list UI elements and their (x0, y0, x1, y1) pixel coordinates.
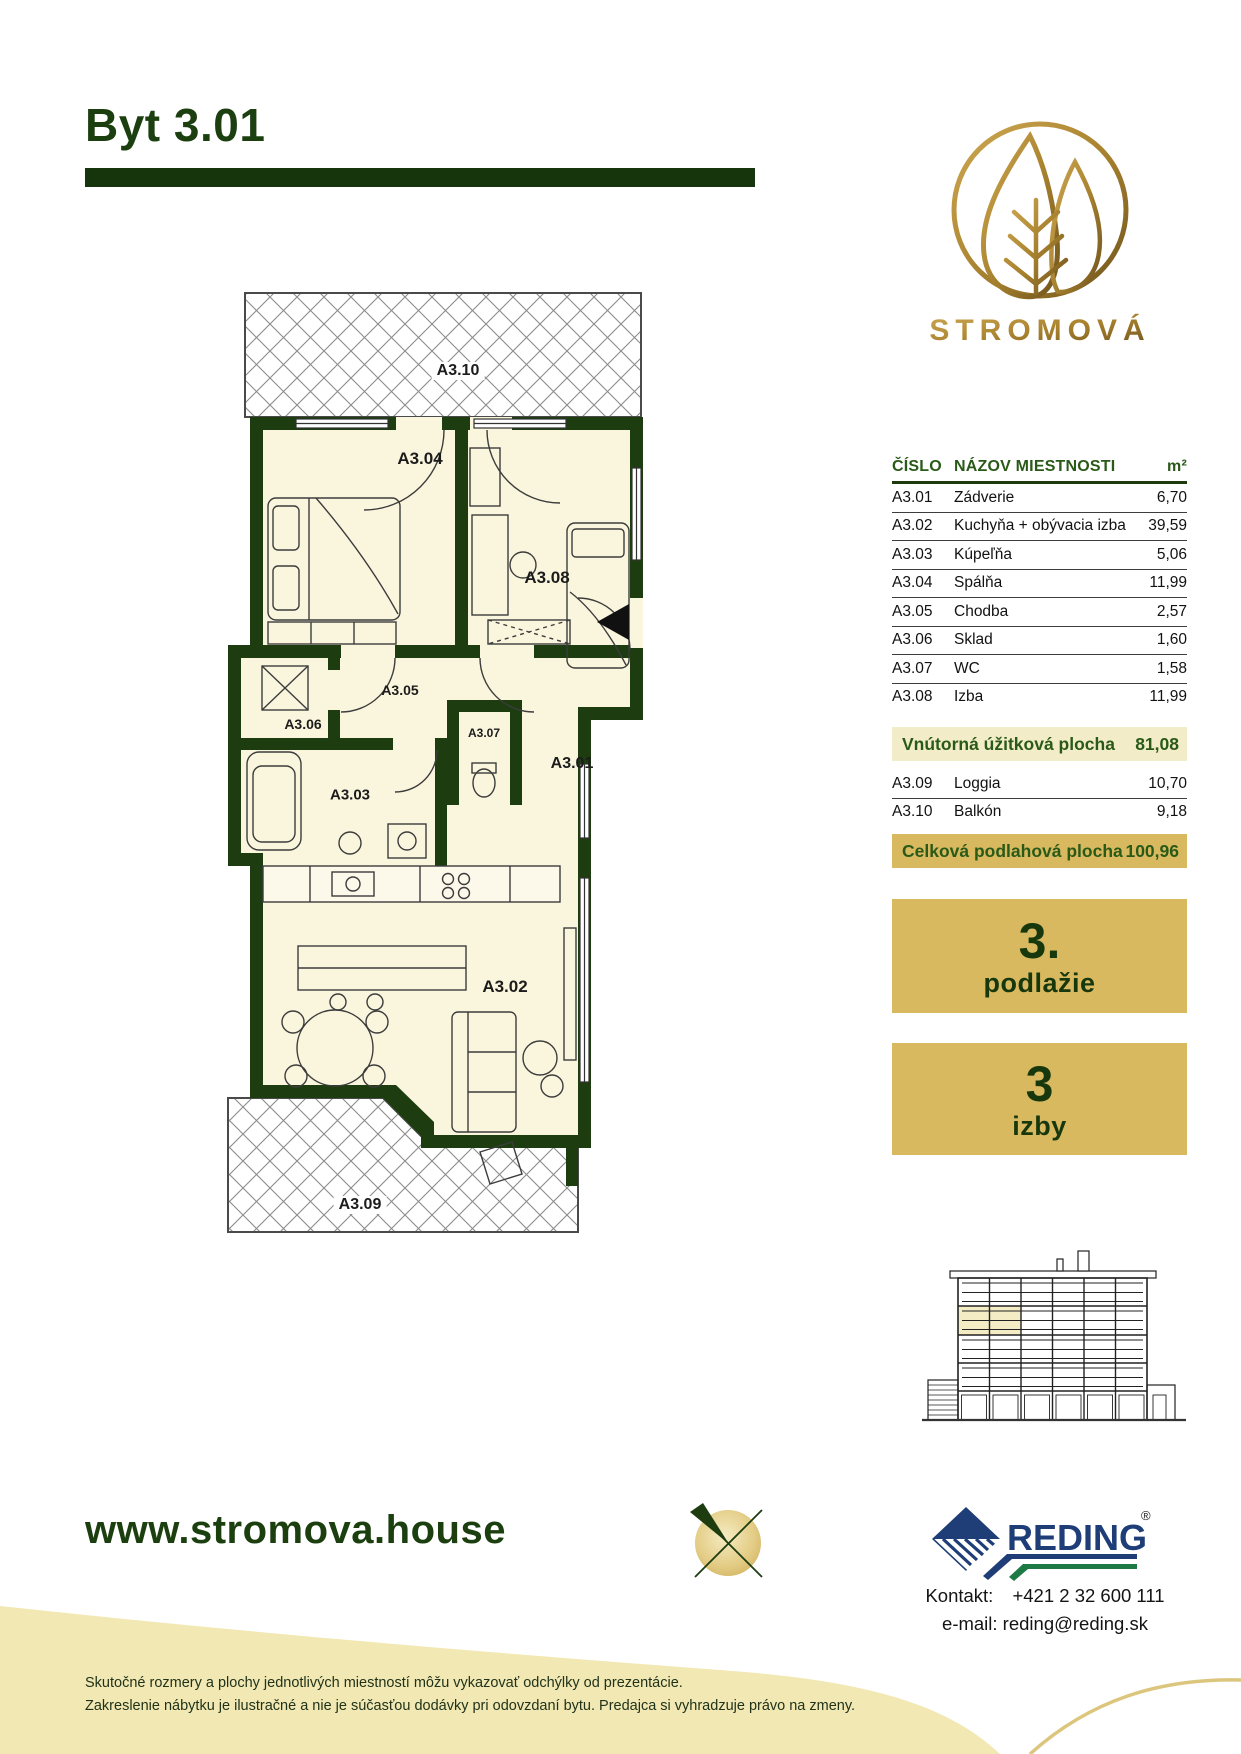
contact-block: Kontakt: +421 2 32 600 111 e-mail: redin… (895, 1582, 1195, 1638)
stromova-logo: STROMOVÁ (910, 100, 1170, 350)
balcony-area (245, 293, 641, 417)
room-name: Spálňa (954, 574, 1133, 592)
room-number: A3.03 (892, 546, 954, 564)
room-area: 6,70 (1133, 489, 1187, 507)
contact-phone: +421 2 32 600 111 (1012, 1585, 1164, 1606)
floor-badge: 3. podlažie (892, 899, 1187, 1013)
room-name: Chodba (954, 603, 1133, 621)
compass-icon (683, 1498, 773, 1588)
room-number: A3.04 (892, 574, 954, 592)
brochure-page: Byt 3.01 STROMOVÁ (0, 0, 1241, 1754)
floor-number: 3. (1019, 914, 1061, 968)
table-row: A3.08 Izba 11,99 (892, 684, 1187, 712)
col-name-header: NÁZOV MIESTNOSTI (954, 458, 1133, 476)
room-name: Balkón (954, 803, 1133, 821)
room-label-a3-08: A3.08 (524, 568, 569, 588)
room-area: 5,06 (1133, 546, 1187, 564)
room-label-a3-01: A3.01 (551, 755, 594, 773)
room-area: 11,99 (1133, 688, 1187, 706)
building-elevation (920, 1245, 1195, 1425)
room-area: 1,58 (1133, 660, 1187, 678)
room-name: Loggia (954, 775, 1133, 793)
room-name: Kuchyňa + obývacia izba (954, 517, 1133, 535)
room-label-a3-02: A3.02 (482, 977, 527, 997)
room-number: A3.07 (892, 660, 954, 678)
room-label-a3-09: A3.09 (334, 1196, 387, 1214)
col-area-header: m² (1133, 458, 1187, 476)
room-name: WC (954, 660, 1133, 678)
subtotal-row: Vnútorná úžitková plocha 81,08 (892, 727, 1187, 761)
room-number: A3.05 (892, 603, 954, 621)
room-name: Sklad (954, 631, 1133, 649)
contact-label: Kontakt: (925, 1585, 993, 1606)
room-area: 39,59 (1133, 517, 1187, 535)
room-area: 11,99 (1133, 574, 1187, 592)
total-label: Celková podlahová plocha (902, 841, 1123, 862)
room-area: 10,70 (1133, 775, 1187, 793)
subtotal-label: Vnútorná úžitková plocha (902, 734, 1115, 755)
disclaimer: Skutočné rozmery a plochy jednotlivých m… (85, 1672, 855, 1717)
page-title: Byt 3.01 (85, 98, 265, 152)
floor-plan-drawing (150, 280, 675, 1330)
room-number: A3.06 (892, 631, 954, 649)
room-number: A3.01 (892, 489, 954, 507)
reding-logo: REDING ® (925, 1498, 1175, 1582)
contact-email-line: e-mail: reding@reding.sk (895, 1610, 1195, 1638)
rooms-label: izby (1012, 1111, 1067, 1142)
room-number: A3.09 (892, 775, 954, 793)
rooms-table-header: ČÍSLO NÁZOV MIESTNOSTI m² (892, 458, 1187, 484)
disclaimer-line-2: Zakreslenie nábytku je ilustračné a nie … (85, 1695, 855, 1718)
room-name: Kúpeľňa (954, 546, 1133, 564)
registered-trademark: ® (1141, 1508, 1151, 1523)
floor-label: podlažie (983, 968, 1095, 999)
room-name: Izba (954, 688, 1133, 706)
room-number: A3.02 (892, 517, 954, 535)
table-row: A3.01 Zádverie 6,70 (892, 484, 1187, 513)
room-area: 2,57 (1133, 603, 1187, 621)
table-row: A3.03 Kúpeľňa 5,06 (892, 541, 1187, 570)
col-number-header: ČÍSLO (892, 458, 954, 476)
room-label-a3-05: A3.05 (381, 682, 418, 698)
total-row: Celková podlahová plocha 100,96 (892, 834, 1187, 868)
table-row: A3.04 Spálňa 11,99 (892, 570, 1187, 599)
room-label-a3-04: A3.04 (397, 449, 442, 469)
room-label-a3-10: A3.10 (432, 362, 485, 380)
rooms-number: 3 (1026, 1057, 1054, 1111)
website-url: www.stromova.house (85, 1508, 506, 1553)
room-name: Zádverie (954, 489, 1133, 507)
table-row: A3.02 Kuchyňa + obývacia izba 39,59 (892, 513, 1187, 542)
room-number: A3.10 (892, 803, 954, 821)
room-label-a3-07: A3.07 (468, 726, 500, 740)
room-label-a3-03: A3.03 (330, 787, 370, 804)
table-row: A3.06 Sklad 1,60 (892, 627, 1187, 656)
reding-wordmark: REDING (1007, 1517, 1147, 1558)
subtotal-value: 81,08 (1135, 734, 1179, 755)
room-area: 1,60 (1133, 631, 1187, 649)
rooms-table: ČÍSLO NÁZOV MIESTNOSTI m² A3.01 Zádverie… (892, 458, 1187, 868)
disclaimer-line-1: Skutočné rozmery a plochy jednotlivých m… (85, 1672, 855, 1695)
contact-phone-line: Kontakt: +421 2 32 600 111 (895, 1582, 1195, 1610)
room-area: 9,18 (1133, 803, 1187, 821)
table-row: A3.05 Chodba 2,57 (892, 598, 1187, 627)
leaf-tree-icon (954, 124, 1126, 297)
total-value: 100,96 (1125, 841, 1179, 862)
table-row: A3.07 WC 1,58 (892, 655, 1187, 684)
table-row: A3.10 Balkón 9,18 (892, 799, 1187, 827)
table-row: A3.09 Loggia 10,70 (892, 770, 1187, 799)
brand-name: STROMOVÁ (929, 313, 1150, 347)
room-number: A3.08 (892, 688, 954, 706)
title-underline-bar (85, 168, 755, 187)
rooms-badge: 3 izby (892, 1043, 1187, 1155)
room-label-a3-06: A3.06 (284, 716, 321, 732)
